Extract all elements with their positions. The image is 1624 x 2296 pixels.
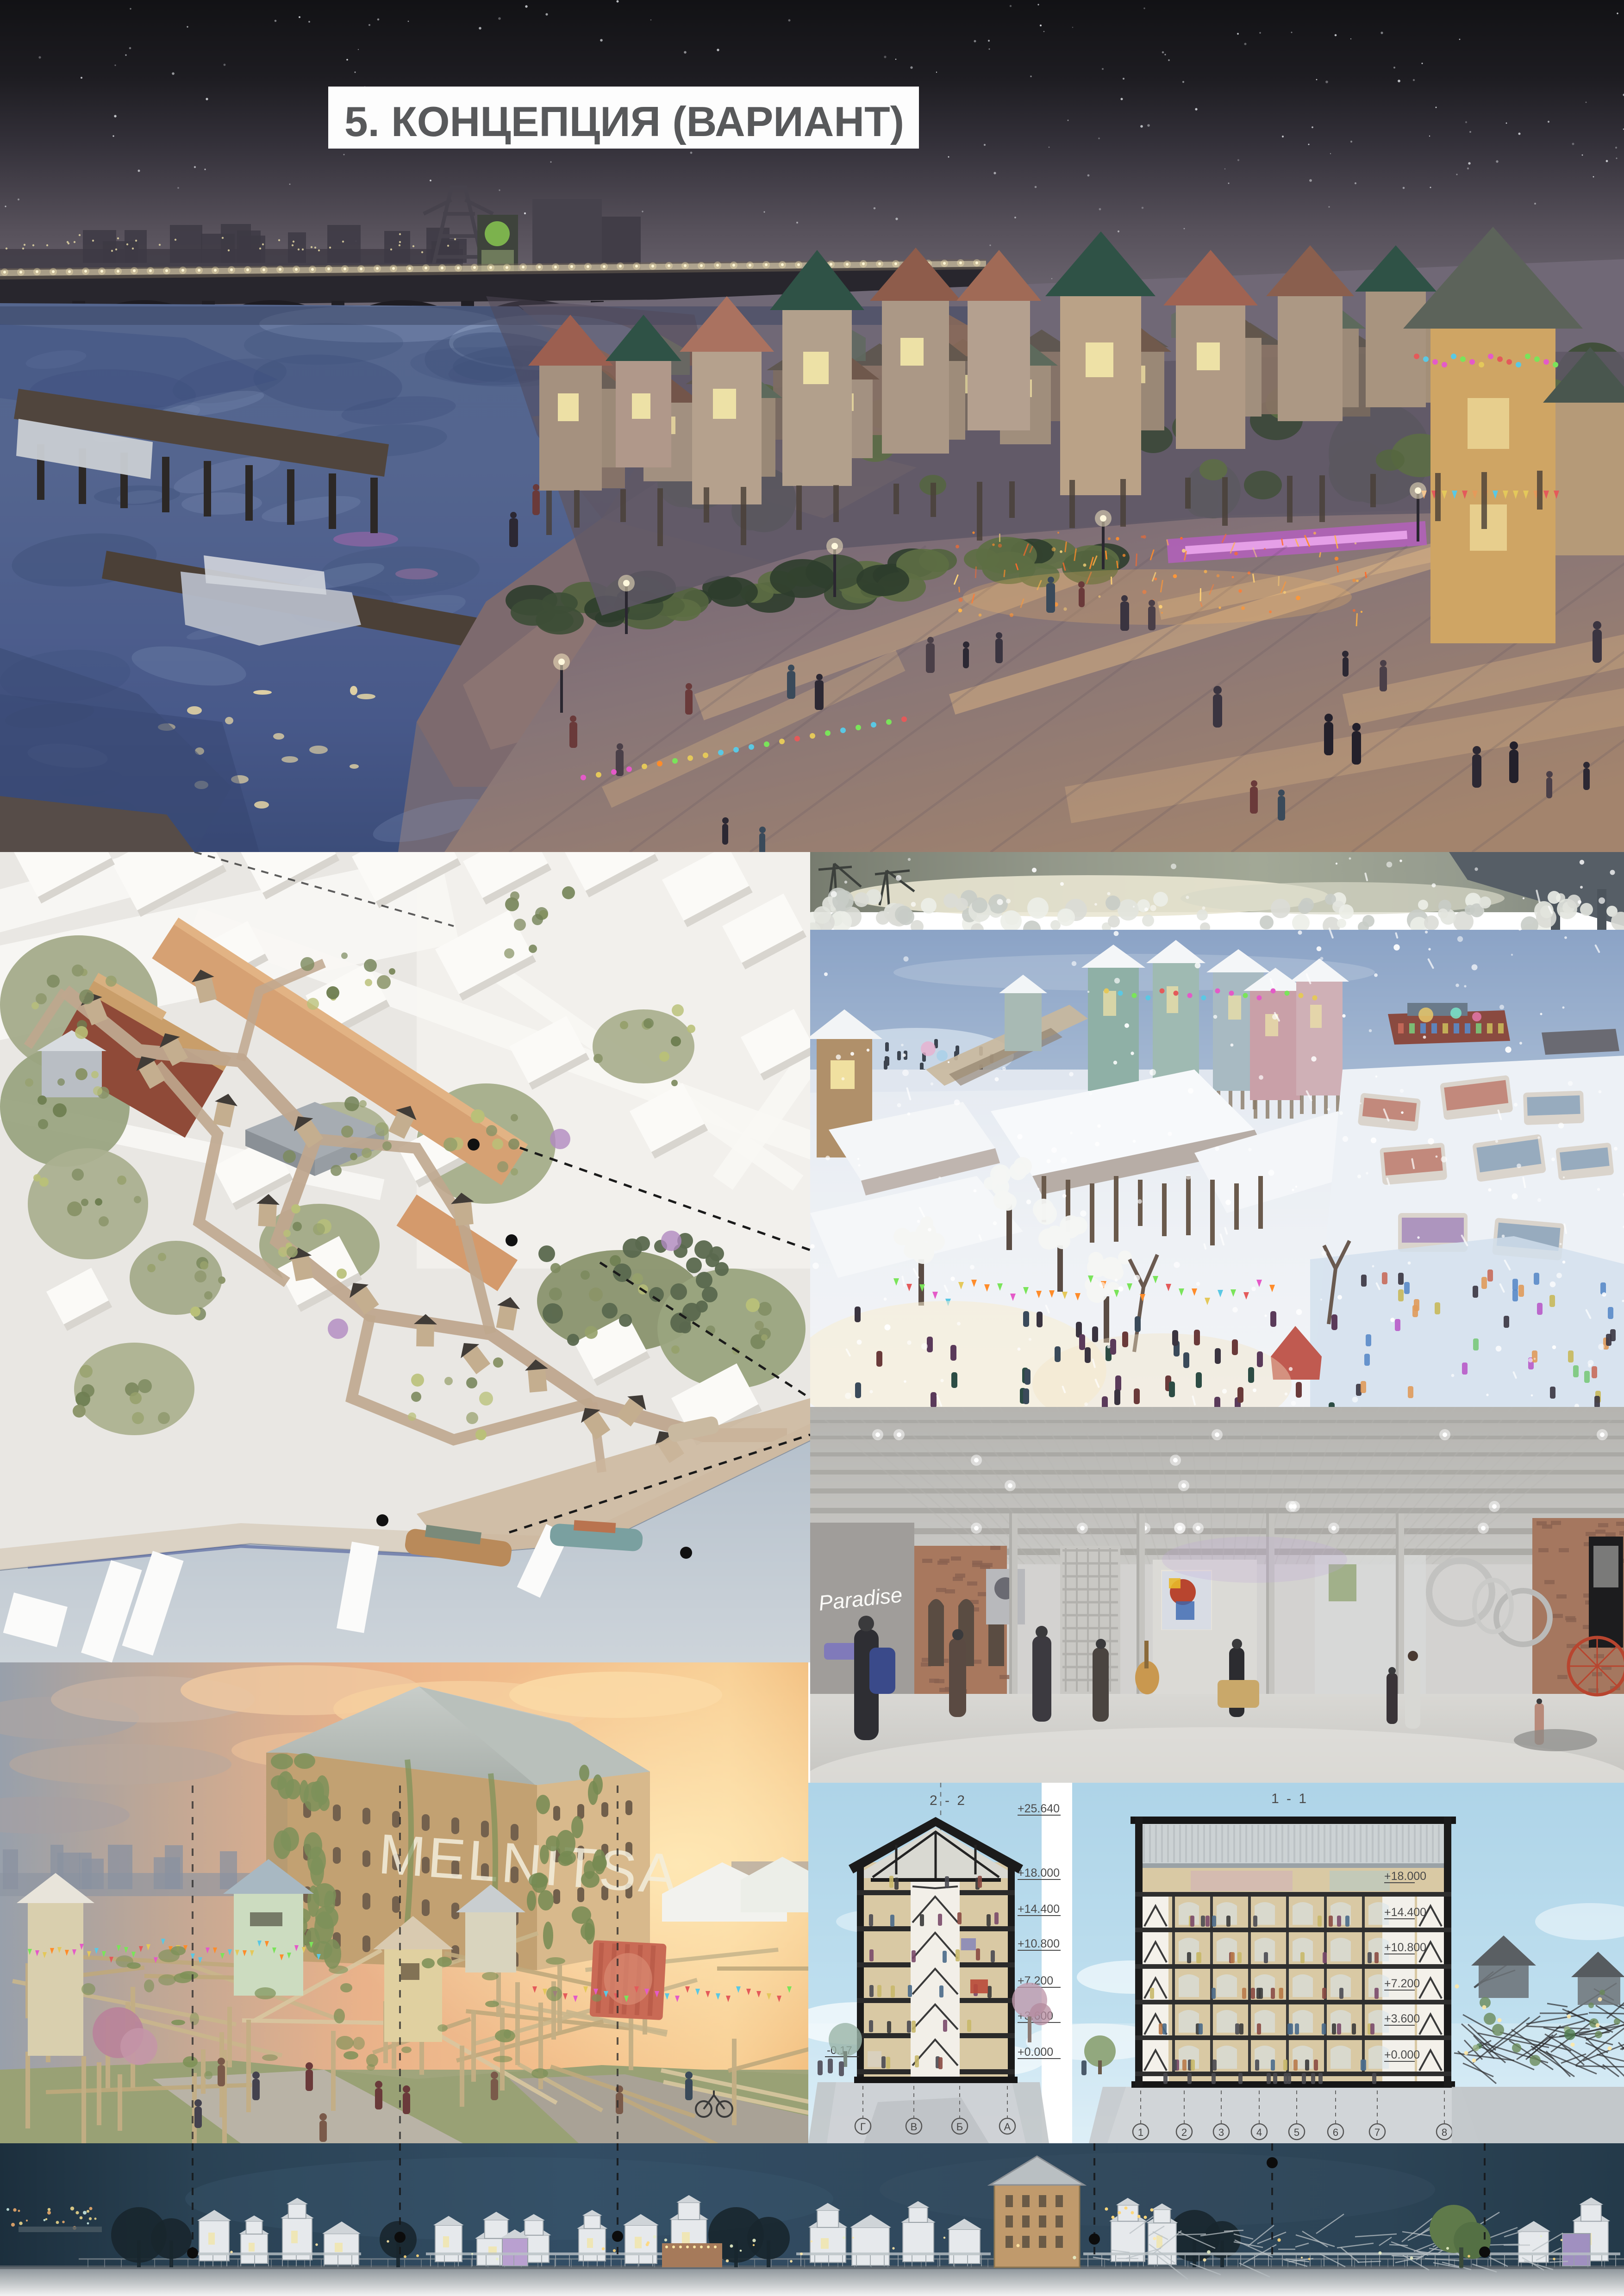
svg-text:+7.200: +7.200 — [1384, 1977, 1420, 1990]
svg-text:6: 6 — [1333, 2127, 1338, 2138]
svg-text:+3.600: +3.600 — [1384, 2012, 1420, 2025]
svg-text:+18.000: +18.000 — [1384, 1870, 1426, 1883]
svg-text:+14.400: +14.400 — [1384, 1906, 1426, 1919]
svg-text:2 - 2: 2 - 2 — [930, 1793, 967, 1808]
svg-text:1 - 1: 1 - 1 — [1271, 1791, 1308, 1806]
svg-text:1: 1 — [1138, 2127, 1143, 2138]
svg-text:+0.000: +0.000 — [1384, 2048, 1420, 2061]
svg-text:А: А — [1004, 2121, 1011, 2133]
svg-text:4: 4 — [1256, 2127, 1262, 2138]
svg-text:Г: Г — [860, 2121, 866, 2133]
svg-text:Б: Б — [956, 2121, 963, 2133]
svg-text:+0.000: +0.000 — [1018, 2046, 1053, 2059]
svg-text:+25.640: +25.640 — [1018, 1802, 1060, 1815]
svg-text:+10.800: +10.800 — [1384, 1941, 1426, 1954]
svg-text:7: 7 — [1374, 2127, 1380, 2138]
svg-text:5: 5 — [1294, 2127, 1299, 2138]
svg-text:+18.000: +18.000 — [1018, 1867, 1060, 1879]
svg-text:8: 8 — [1442, 2127, 1447, 2138]
svg-text:В: В — [911, 2121, 918, 2133]
svg-text:2: 2 — [1181, 2127, 1187, 2138]
svg-text:+10.800: +10.800 — [1018, 1937, 1060, 1950]
svg-text:3: 3 — [1218, 2127, 1224, 2138]
svg-text:+14.400: +14.400 — [1018, 1903, 1060, 1916]
